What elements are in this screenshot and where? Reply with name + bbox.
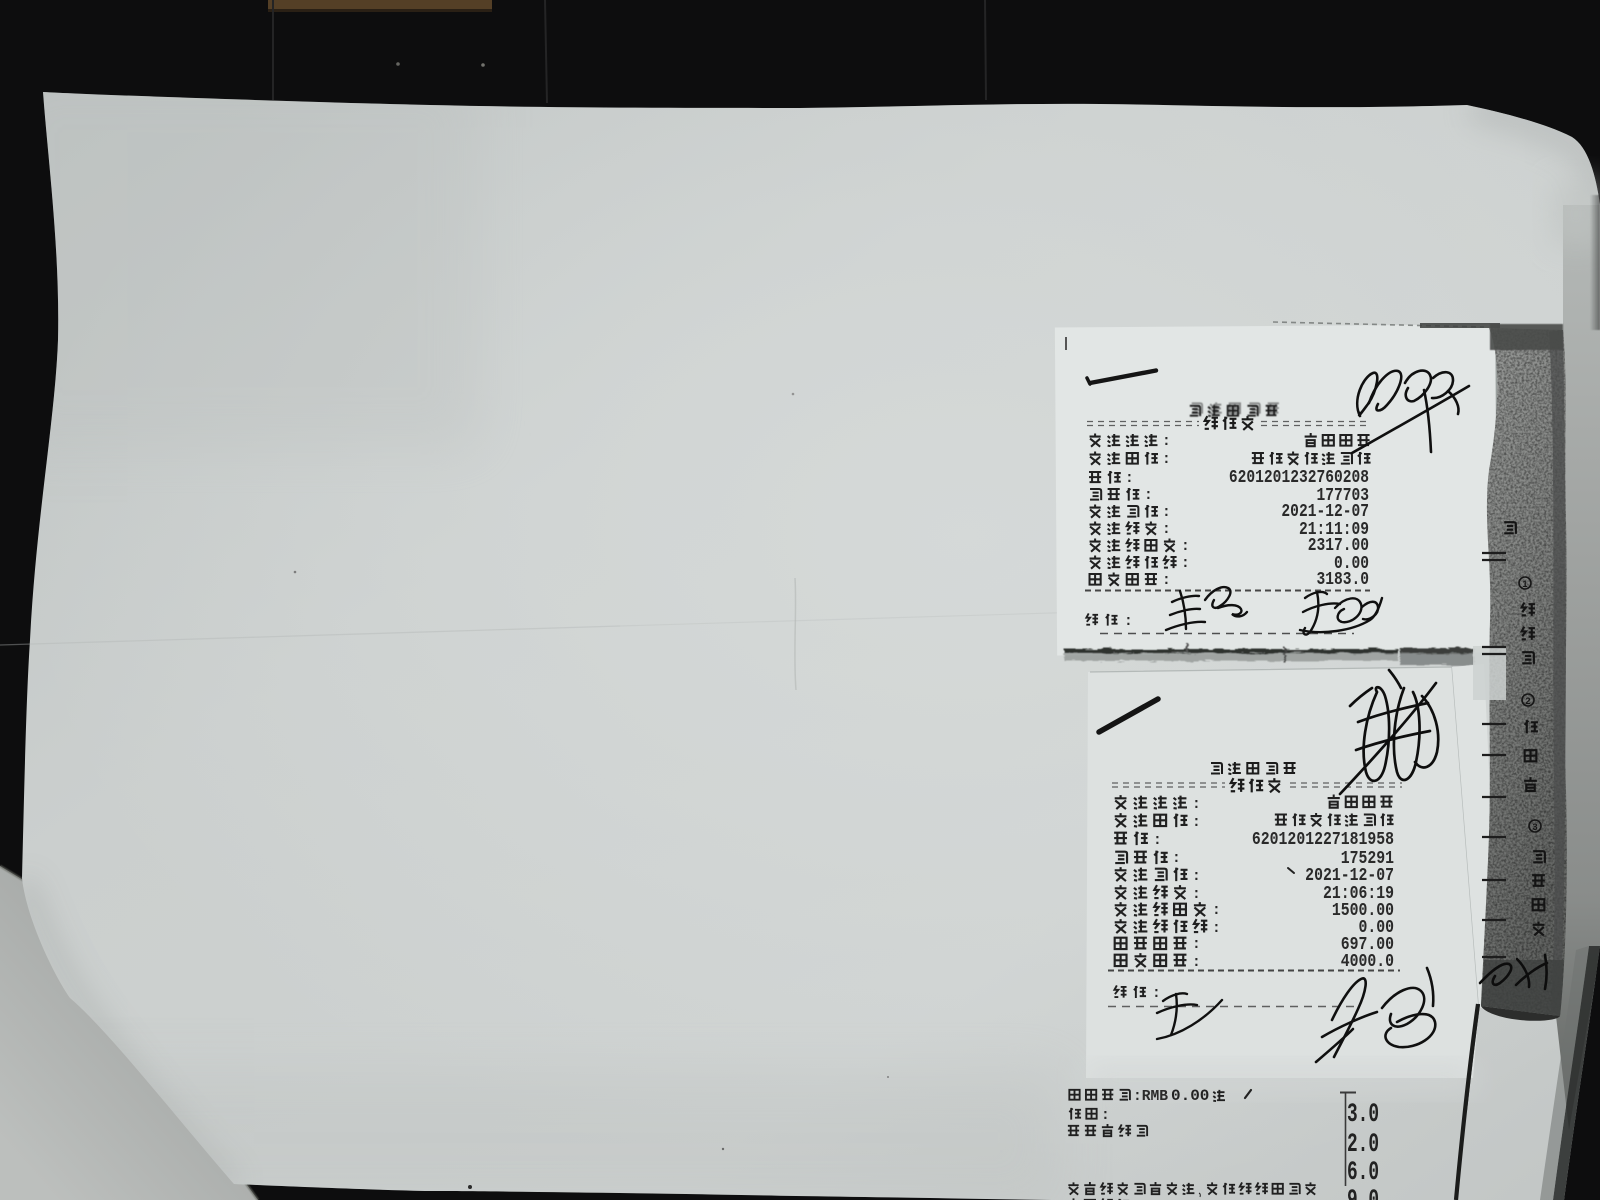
svg-text:3: 3 <box>1532 822 1537 832</box>
svg-text::: : <box>1192 869 1201 885</box>
svg-text:0.00: 0.00 <box>1171 1087 1209 1105</box>
svg-text::: : <box>1152 986 1161 1002</box>
svg-text:1: 1 <box>1522 579 1527 589</box>
svg-text::: : <box>1192 955 1201 971</box>
svg-text::: : <box>1172 851 1181 867</box>
svg-text::: : <box>1181 539 1190 555</box>
svg-text::: : <box>1153 833 1162 849</box>
svg-text:6201201227181958: 6201201227181958 <box>1252 830 1394 851</box>
svg-text:3.0: 3.0 <box>1347 1099 1379 1130</box>
svg-text::: : <box>1212 903 1221 919</box>
svg-text::: : <box>1192 815 1201 831</box>
svg-text:2: 2 <box>1525 696 1530 706</box>
svg-text::: : <box>1101 1108 1110 1124</box>
svg-text::: : <box>1162 434 1171 450</box>
svg-text::: : <box>1212 921 1221 937</box>
svg-text:9.0: 9.0 <box>1347 1185 1379 1200</box>
svg-text:6.0: 6.0 <box>1347 1157 1379 1188</box>
svg-text:2.0: 2.0 <box>1347 1129 1379 1160</box>
svg-text::: : <box>1192 797 1201 813</box>
svg-text::: : <box>1162 452 1171 468</box>
svg-text::: : <box>1162 573 1171 589</box>
svg-text::: : <box>1181 556 1190 572</box>
svg-text::: : <box>1162 522 1171 538</box>
svg-text::: : <box>1192 937 1201 953</box>
svg-text::: : <box>1192 887 1201 903</box>
svg-text::: : <box>1124 614 1133 630</box>
svg-text:3183.0: 3183.0 <box>1316 569 1369 590</box>
svg-text::: : <box>1162 505 1171 521</box>
svg-text:4000.0: 4000.0 <box>1341 952 1394 973</box>
svg-text::: : <box>1125 471 1134 487</box>
svg-text::RMB: :RMB <box>1133 1089 1168 1105</box>
svg-text::: : <box>1144 488 1153 504</box>
